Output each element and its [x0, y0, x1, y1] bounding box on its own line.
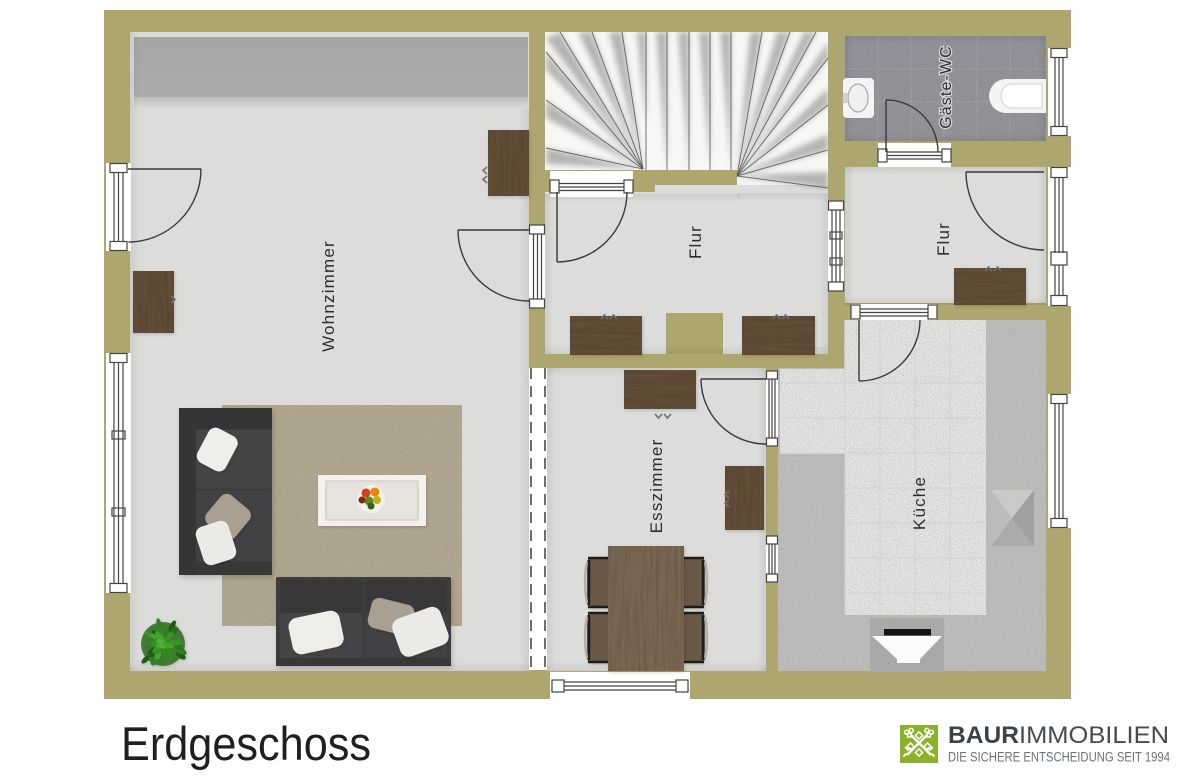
svg-text:Wohnzimmer: Wohnzimmer: [319, 240, 338, 352]
svg-text:DIE SICHERE ENTSCHEIDUNG SEIT: DIE SICHERE ENTSCHEIDUNG SEIT 1994: [948, 750, 1170, 765]
svg-text:BAUR: BAUR: [948, 722, 1019, 749]
svg-text:Gäste-WC: Gäste-WC: [938, 45, 955, 128]
svg-text:Flur: Flur: [686, 225, 705, 259]
svg-text:Esszimmer: Esszimmer: [647, 439, 666, 534]
svg-text:Flur: Flur: [934, 222, 953, 256]
svg-text:IMMOBILIEN: IMMOBILIEN: [1019, 722, 1169, 749]
svg-text:Erdgeschoss: Erdgeschoss: [121, 717, 371, 770]
svg-text:Küche: Küche: [910, 476, 929, 530]
